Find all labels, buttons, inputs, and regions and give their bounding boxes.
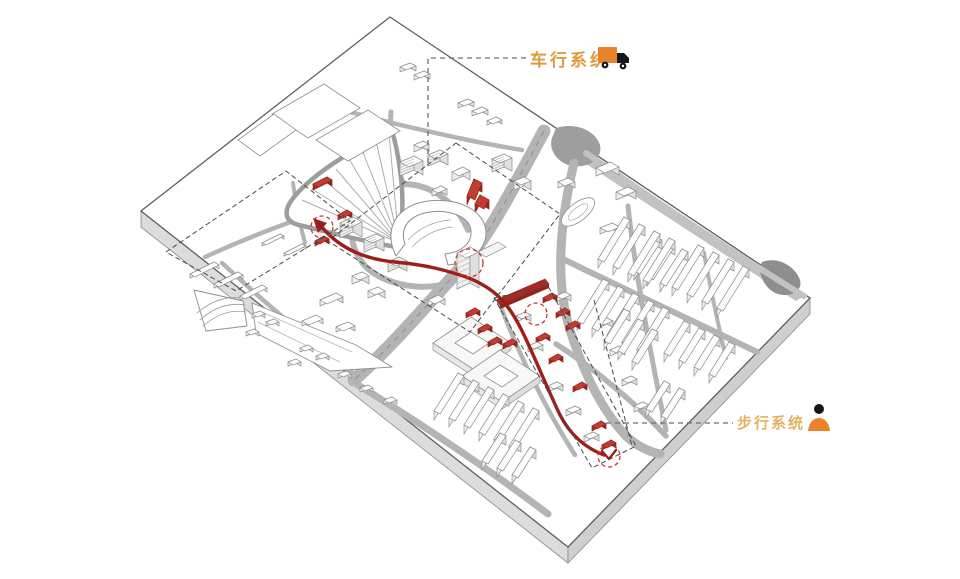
pedestrian-system-label: 步行系统 xyxy=(737,412,805,433)
axonometric-site-diagram xyxy=(0,0,960,579)
site-diagram-canvas: 车行系统 步行系统 xyxy=(0,0,960,579)
